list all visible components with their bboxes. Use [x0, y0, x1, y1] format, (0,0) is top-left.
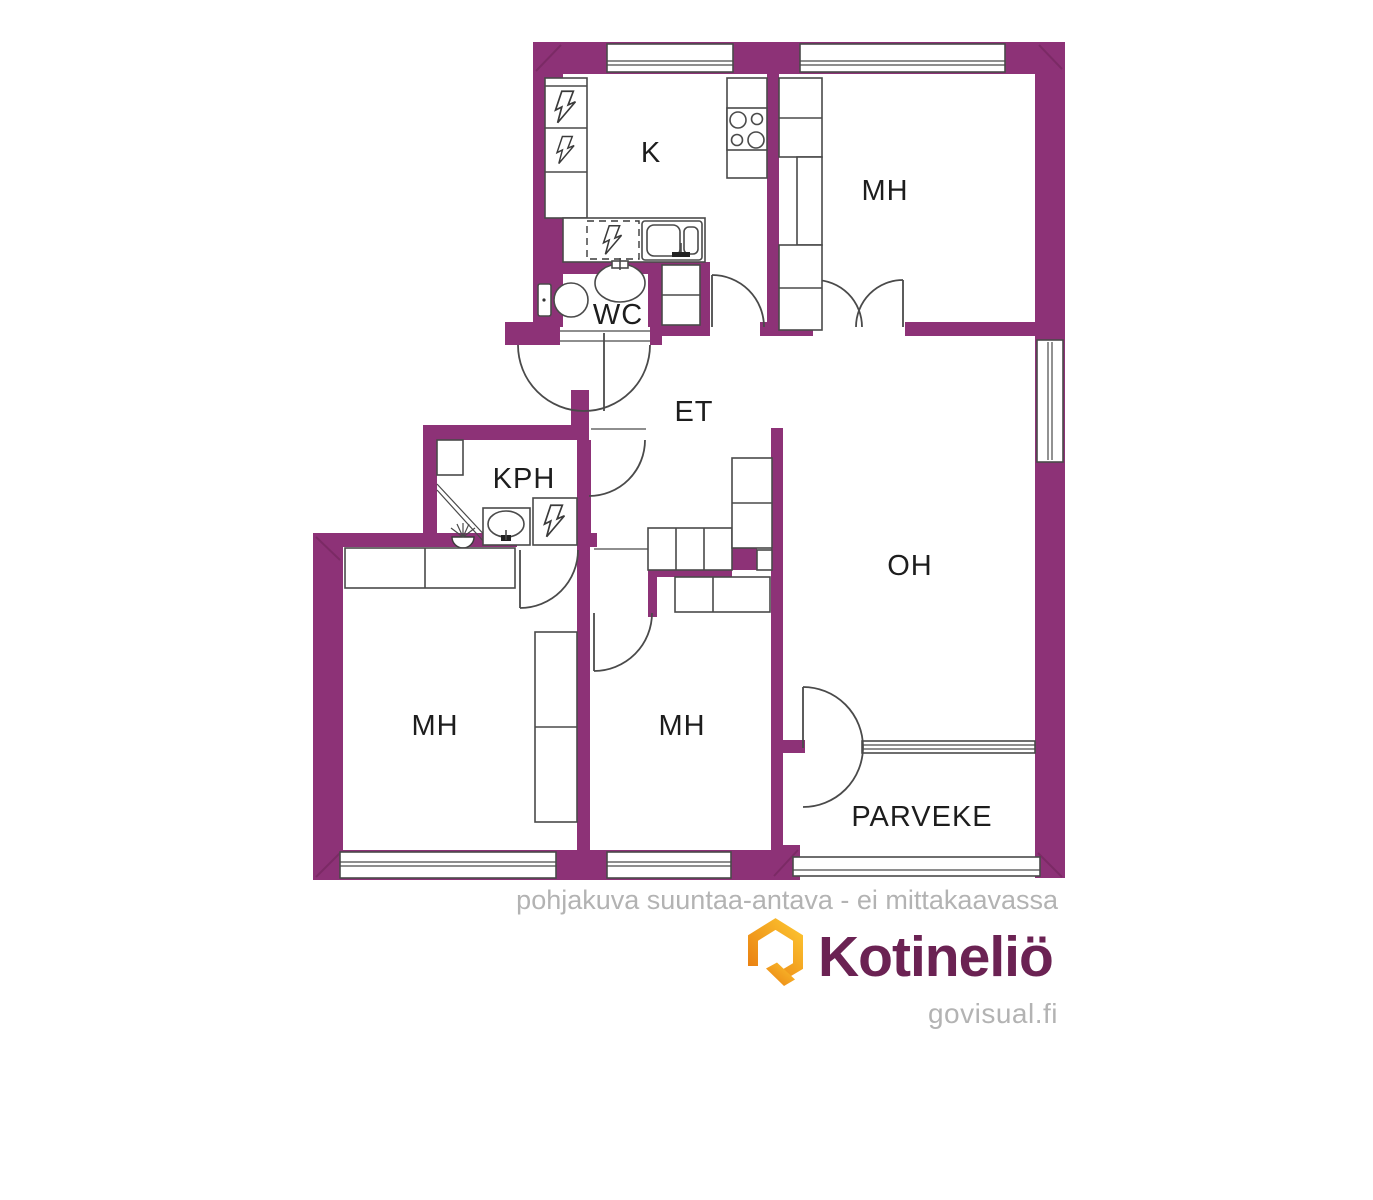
wall-kph-left: [423, 425, 437, 545]
wall: [313, 533, 343, 880]
tap: [672, 252, 690, 257]
house-logo-icon: [753, 924, 798, 986]
floor-plan-page: K MH WC ET KPH OH MH MH PARVEKE pohjakuv…: [0, 0, 1373, 1200]
toilet-icon: [538, 283, 588, 317]
wall: [648, 570, 657, 617]
bedroom-middle-closet: [675, 577, 770, 612]
wall-bedrooms-divider: [577, 547, 590, 880]
website-credit: govisual.fi: [928, 998, 1058, 1029]
wc-cabinet: [662, 265, 700, 325]
wall: [648, 570, 732, 577]
bedroom-left-door: [520, 550, 578, 608]
room-label-bedroom-left: MH: [411, 710, 458, 742]
window-kitchen: [607, 44, 733, 72]
wall: [700, 262, 710, 336]
bedroom-left-furniture: [345, 548, 577, 822]
bedroom-middle-door: [594, 549, 652, 671]
room-label-living-room: OH: [887, 550, 933, 582]
window-bedroom-left: [340, 852, 556, 878]
room-label-bedroom-middle: MH: [658, 710, 705, 742]
wall-kph-right: [577, 440, 591, 547]
kitchen-door: [712, 275, 764, 327]
bedroom-top-double-door: [815, 280, 903, 327]
wall: [577, 533, 597, 547]
wall: [771, 740, 805, 753]
wall-wc-right: [648, 262, 662, 345]
wall: [905, 322, 1035, 336]
disclaimer-text: pohjakuva suuntaa-antava - ei mittakaava…: [516, 885, 1059, 915]
wall-kitchen-bedroom: [767, 74, 779, 334]
window-bedroom-top: [800, 44, 1005, 72]
footer: pohjakuva suuntaa-antava - ei mittakaava…: [516, 885, 1059, 1029]
balcony-railing: [793, 857, 1040, 876]
balcony-door: [803, 687, 863, 807]
room-label-bedroom-top: MH: [861, 175, 908, 207]
room-label-kitchen: K: [641, 137, 661, 169]
bathroom-sink: [483, 508, 530, 545]
dishwasher: [587, 221, 639, 259]
bathroom-door: [589, 429, 646, 496]
kitchen-counter-sink: [563, 218, 705, 262]
kotinelio-logo: Kotineliö: [753, 924, 1053, 989]
room-label-bathroom: KPH: [493, 463, 556, 495]
washing-machine: [533, 498, 577, 545]
brand-name: Kotineliö: [818, 925, 1053, 989]
floor-plan-drawing: K MH WC ET KPH OH MH MH PARVEKE pohjakuv…: [0, 0, 1373, 1200]
window-bedroom-middle: [607, 852, 731, 878]
room-label-balcony: PARVEKE: [851, 801, 992, 833]
wall: [505, 322, 563, 345]
fridge-freezer: [545, 78, 587, 218]
walls: [313, 42, 1065, 880]
window-living-room: [1037, 340, 1063, 462]
wall-kph-top: [423, 425, 589, 440]
kitchen-fixtures: [545, 78, 767, 262]
stove: [727, 78, 767, 178]
window-balcony: [862, 741, 1035, 753]
kph-shelf: [437, 440, 463, 475]
wall: [571, 390, 589, 428]
bedroom-top-wardrobes: [779, 78, 822, 330]
room-label-wc: WC: [593, 299, 643, 331]
wall: [732, 548, 757, 570]
room-label-hallway: ET: [674, 396, 713, 428]
